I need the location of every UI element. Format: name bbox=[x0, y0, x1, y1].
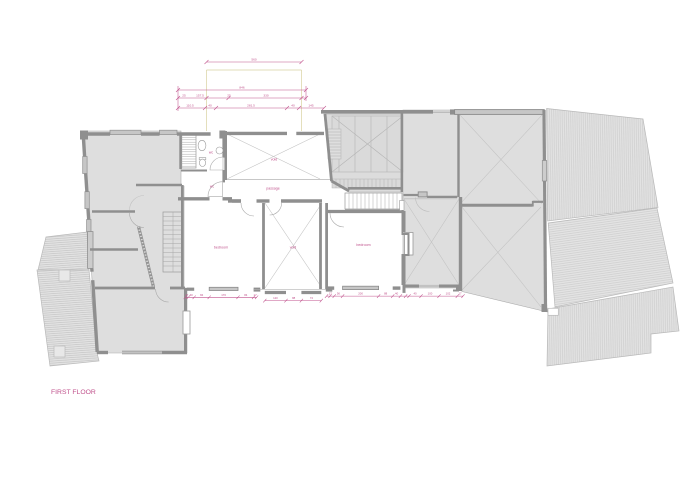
svg-text:56: 56 bbox=[337, 292, 341, 296]
svg-text:176: 176 bbox=[221, 293, 226, 297]
svg-text:102: 102 bbox=[446, 292, 451, 296]
svg-text:25: 25 bbox=[182, 94, 186, 98]
svg-text:846: 846 bbox=[239, 86, 244, 90]
svg-text:25: 25 bbox=[227, 94, 231, 98]
svg-text:281.5: 281.5 bbox=[247, 104, 255, 108]
svg-text:FIRST FLOOR: FIRST FLOOR bbox=[51, 389, 96, 396]
svg-text:84: 84 bbox=[244, 293, 248, 297]
svg-text:17: 17 bbox=[329, 292, 333, 296]
svg-text:40: 40 bbox=[208, 104, 212, 108]
svg-text:17: 17 bbox=[254, 293, 258, 297]
svg-text:17: 17 bbox=[185, 293, 189, 297]
svg-text:40: 40 bbox=[291, 104, 295, 108]
svg-text:void: void bbox=[271, 157, 278, 161]
svg-text:157.5: 157.5 bbox=[196, 94, 204, 98]
svg-text:88: 88 bbox=[384, 292, 388, 296]
svg-text:bedroom: bedroom bbox=[214, 246, 228, 250]
svg-text:void: void bbox=[290, 246, 297, 250]
svg-text:560: 560 bbox=[251, 58, 256, 62]
svg-text:40: 40 bbox=[395, 292, 399, 296]
svg-text:120: 120 bbox=[273, 296, 278, 300]
svg-text:100: 100 bbox=[428, 292, 433, 296]
svg-text:wc: wc bbox=[210, 185, 214, 189]
svg-text:wc: wc bbox=[209, 151, 213, 155]
svg-text:40: 40 bbox=[190, 293, 194, 297]
svg-text:84: 84 bbox=[200, 293, 204, 297]
svg-text:330: 330 bbox=[263, 94, 268, 98]
svg-text:passage: passage bbox=[266, 186, 280, 190]
svg-text:110.5: 110.5 bbox=[186, 104, 194, 108]
svg-text:bedroom: bedroom bbox=[356, 243, 370, 247]
svg-text:40: 40 bbox=[413, 292, 417, 296]
svg-text:200: 200 bbox=[358, 292, 363, 296]
svg-text:88: 88 bbox=[292, 296, 296, 300]
svg-text:145: 145 bbox=[308, 104, 313, 108]
svg-text:17: 17 bbox=[458, 292, 462, 296]
svg-text:74: 74 bbox=[310, 296, 314, 300]
